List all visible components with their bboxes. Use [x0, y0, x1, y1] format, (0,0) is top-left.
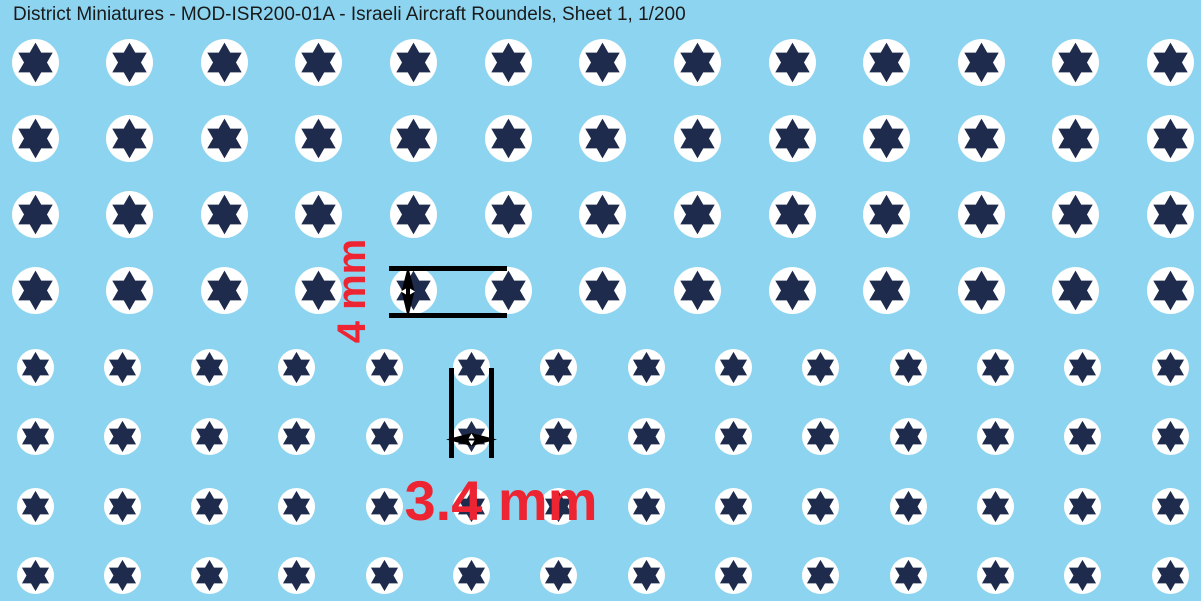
measurement-label-4mm: 4 mm — [332, 231, 372, 351]
roundel-star-of-david — [674, 267, 721, 314]
roundel-star-of-david — [104, 488, 141, 525]
roundel-star-of-david — [1147, 115, 1194, 162]
roundel-star-of-david — [1064, 557, 1101, 594]
roundel-star-of-david — [1147, 191, 1194, 238]
roundel-star-of-david — [366, 418, 403, 455]
roundel-star-of-david — [191, 418, 228, 455]
roundel-star-of-david — [390, 267, 437, 314]
roundel-star-of-david — [769, 267, 816, 314]
roundel-star-of-david — [1152, 349, 1189, 386]
roundel-star-of-david — [715, 557, 752, 594]
roundel-star-of-david — [674, 191, 721, 238]
roundel-star-of-david — [201, 115, 248, 162]
roundel-star-of-david — [977, 488, 1014, 525]
roundel-star-of-david — [890, 418, 927, 455]
roundel-star-of-david — [390, 115, 437, 162]
roundel-star-of-david — [674, 115, 721, 162]
roundel-star-of-david — [977, 557, 1014, 594]
roundel-star-of-david — [958, 115, 1005, 162]
roundel-star-of-david — [278, 488, 315, 525]
roundel-star-of-david — [104, 557, 141, 594]
roundel-star-of-david — [802, 349, 839, 386]
roundel-star-of-david — [579, 115, 626, 162]
roundel-star-of-david — [1052, 267, 1099, 314]
roundel-star-of-david — [201, 191, 248, 238]
roundel-star-of-david — [628, 488, 665, 525]
roundel-star-of-david — [540, 349, 577, 386]
sheet-title: District Miniatures - MOD-ISR200-01A - I… — [13, 3, 686, 27]
roundel-star-of-david — [278, 557, 315, 594]
roundel-star-of-david — [278, 349, 315, 386]
roundel-star-of-david — [104, 349, 141, 386]
roundel-star-of-david — [1152, 557, 1189, 594]
roundel-star-of-david — [628, 349, 665, 386]
roundel-star-of-david — [977, 349, 1014, 386]
roundel-star-of-david — [17, 557, 54, 594]
roundel-star-of-david — [863, 115, 910, 162]
roundel-star-of-david — [1147, 267, 1194, 314]
roundel-star-of-david — [1064, 418, 1101, 455]
roundel-star-of-david — [769, 39, 816, 86]
roundel-star-of-david — [453, 418, 490, 455]
roundel-star-of-david — [802, 557, 839, 594]
roundel-star-of-david — [769, 191, 816, 238]
roundel-star-of-david — [106, 191, 153, 238]
roundel-star-of-david — [890, 557, 927, 594]
roundel-star-of-david — [106, 267, 153, 314]
roundel-star-of-david — [579, 267, 626, 314]
roundel-star-of-david — [863, 191, 910, 238]
roundel-star-of-david — [715, 488, 752, 525]
roundel-star-of-david — [540, 418, 577, 455]
roundel-star-of-david — [1064, 349, 1101, 386]
measurement-label-3-4mm: 3.4 mm — [391, 473, 611, 529]
roundel-star-of-david — [1052, 39, 1099, 86]
roundel-star-of-david — [485, 39, 532, 86]
roundel-star-of-david — [104, 418, 141, 455]
roundel-star-of-david — [715, 418, 752, 455]
roundel-star-of-david — [628, 557, 665, 594]
roundel-star-of-david — [863, 39, 910, 86]
roundel-star-of-david — [453, 557, 490, 594]
roundel-star-of-david — [390, 191, 437, 238]
roundel-star-of-david — [890, 349, 927, 386]
roundel-star-of-david — [958, 191, 1005, 238]
roundel-star-of-david — [863, 267, 910, 314]
roundel-star-of-david — [674, 39, 721, 86]
roundel-star-of-david — [366, 349, 403, 386]
roundel-star-of-david — [295, 39, 342, 86]
roundel-star-of-david — [1147, 39, 1194, 86]
roundel-star-of-david — [977, 418, 1014, 455]
roundel-star-of-david — [1152, 488, 1189, 525]
roundel-star-of-david — [579, 39, 626, 86]
roundel-star-of-david — [366, 557, 403, 594]
roundel-star-of-david — [106, 39, 153, 86]
roundel-star-of-david — [1052, 191, 1099, 238]
roundel-star-of-david — [191, 349, 228, 386]
roundel-star-of-david — [278, 418, 315, 455]
roundel-star-of-david — [802, 418, 839, 455]
roundel-star-of-david — [12, 191, 59, 238]
roundel-star-of-david — [191, 557, 228, 594]
roundel-star-of-david — [769, 115, 816, 162]
roundel-star-of-david — [485, 267, 532, 314]
roundel-star-of-david — [1052, 115, 1099, 162]
decal-sheet: { "title": "District Miniatures - MOD-IS… — [0, 0, 1201, 601]
roundel-star-of-david — [579, 191, 626, 238]
roundel-star-of-david — [628, 418, 665, 455]
roundel-star-of-david — [802, 488, 839, 525]
roundel-star-of-david — [1152, 418, 1189, 455]
roundel-star-of-david — [715, 349, 752, 386]
roundel-star-of-david — [453, 349, 490, 386]
roundel-star-of-david — [890, 488, 927, 525]
roundel-star-of-david — [295, 115, 342, 162]
roundel-star-of-david — [1064, 488, 1101, 525]
roundel-star-of-david — [191, 488, 228, 525]
roundel-star-of-david — [106, 115, 153, 162]
roundel-star-of-david — [201, 39, 248, 86]
roundel-star-of-david — [201, 267, 248, 314]
roundel-star-of-david — [485, 115, 532, 162]
roundel-star-of-david — [958, 267, 1005, 314]
roundel-star-of-david — [485, 191, 532, 238]
roundel-star-of-david — [17, 488, 54, 525]
roundel-star-of-david — [540, 557, 577, 594]
roundel-star-of-david — [12, 39, 59, 86]
roundel-star-of-david — [390, 39, 437, 86]
roundel-star-of-david — [12, 115, 59, 162]
roundel-star-of-david — [17, 349, 54, 386]
roundel-star-of-david — [12, 267, 59, 314]
roundel-star-of-david — [958, 39, 1005, 86]
roundel-star-of-david — [17, 418, 54, 455]
